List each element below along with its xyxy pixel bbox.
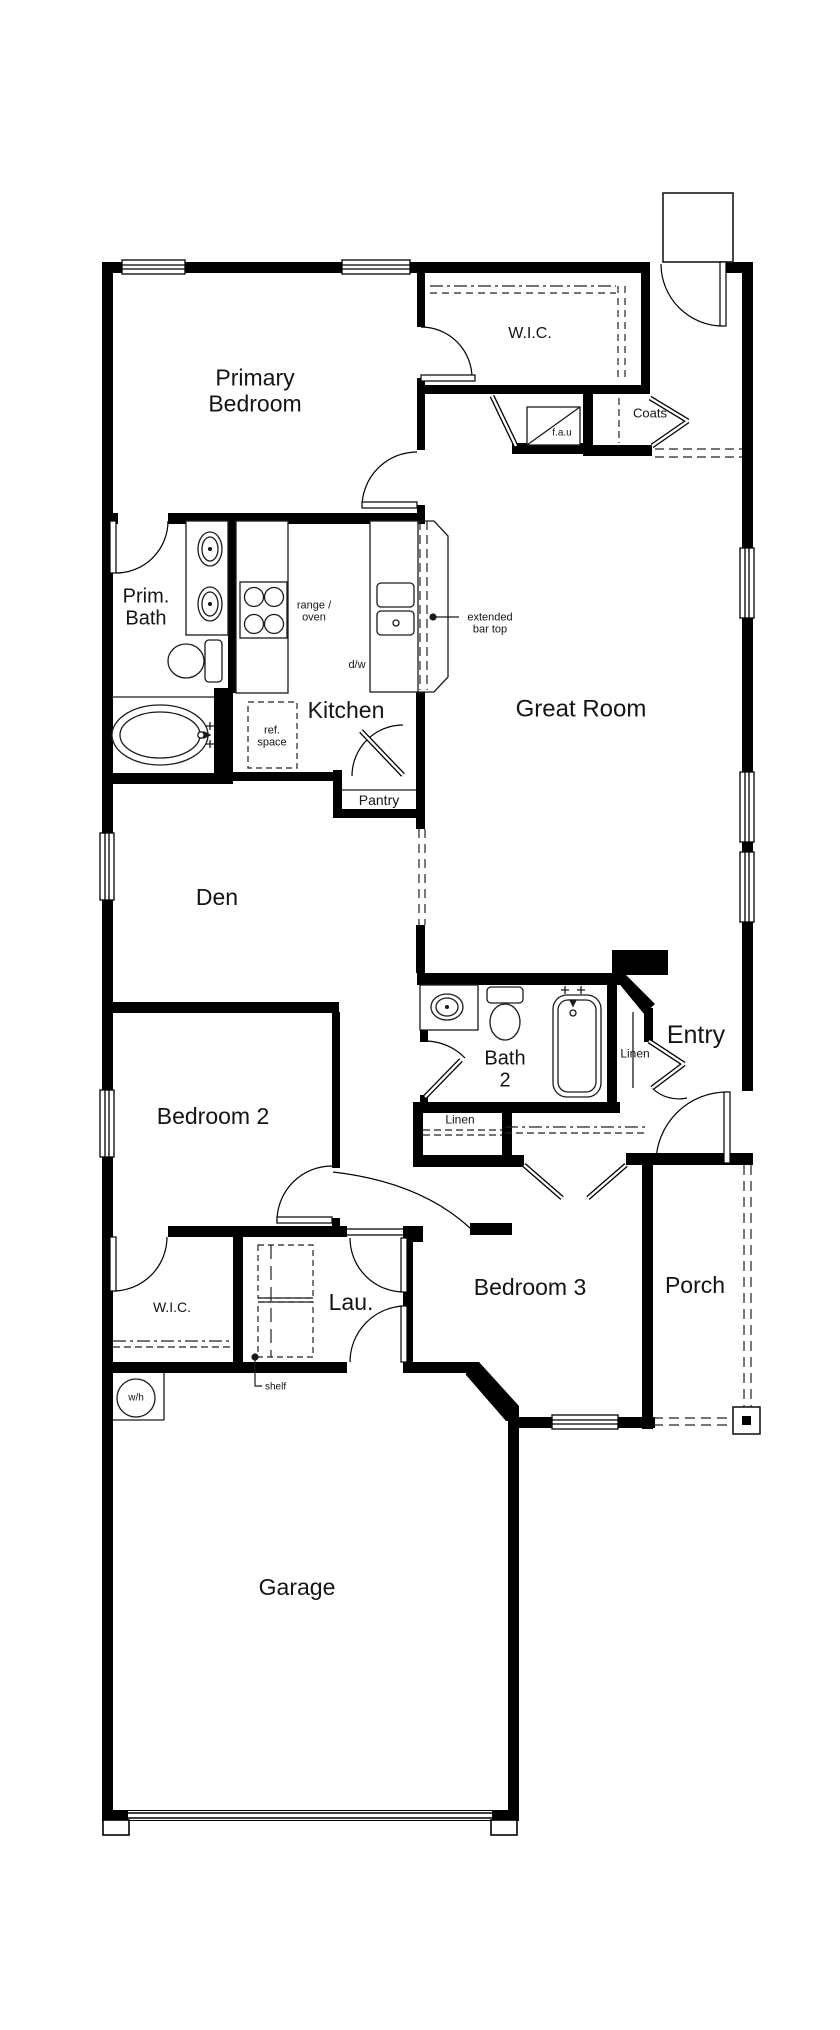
window-icon (100, 1090, 114, 1157)
vanity-icon (420, 985, 478, 1030)
room-label-lau: Lau. (329, 1290, 374, 1316)
room-label-bath2: Bath 2 (484, 1048, 525, 1093)
room-label-kitchen: Kitchen (308, 698, 385, 724)
range-oven-icon (240, 582, 287, 638)
lau-opening-header (347, 1227, 403, 1236)
closet-label-coats: Coats (633, 407, 667, 422)
prim-bath-door-arc (116, 521, 168, 573)
bedroom2-door-leaf (277, 1217, 332, 1223)
room-label-entry: Entry (667, 1021, 725, 1049)
shelf-label: shelf (265, 1382, 286, 1393)
bathtub-icon (553, 986, 601, 1097)
front-door-arc (656, 1092, 727, 1163)
toilet-icon (487, 987, 523, 1040)
prim-bath-door-leaf (110, 521, 116, 573)
wic-primary-door-arc (421, 327, 472, 378)
primary-door-leaf (362, 502, 417, 508)
dishwasher-label: d/w (348, 659, 365, 671)
linen-upper-door-arc (652, 1088, 687, 1099)
room-label-bedroom2: Bedroom 2 (157, 1104, 270, 1130)
room-label-garage: Garage (259, 1575, 336, 1601)
window-icon (740, 548, 754, 618)
room-label-prim-bath: Prim. Bath (123, 586, 170, 631)
window-icon (740, 772, 754, 842)
room-label-bedroom3: Bedroom 3 (474, 1275, 587, 1301)
primary-door-arc (362, 452, 417, 507)
room-label-primary-bedroom: Primary Bedroom (208, 365, 301, 417)
window-icon (552, 1415, 618, 1429)
wic2-door-leaf (110, 1237, 116, 1291)
window-icon (740, 852, 754, 922)
ref-space-label: ref. space (257, 725, 286, 750)
room-label-great-room: Great Room (516, 697, 647, 724)
window-icon (100, 833, 114, 900)
fau-icon (527, 407, 580, 445)
back-door-leaf (720, 262, 726, 326)
vanity-icon (186, 521, 228, 635)
floorplan-page: Primary Bedroom W.I.C. Coats f.a.u Prim.… (0, 0, 840, 2030)
window-icon (122, 260, 185, 274)
lau-hall-door-leaf (401, 1238, 407, 1292)
toilet-icon (168, 640, 222, 682)
floorplan-svg (0, 0, 840, 2030)
range-oven-label: range / oven (297, 600, 331, 625)
extended-bar-label: extended bar top (467, 612, 512, 637)
lau-hall-door-arc (350, 1238, 404, 1292)
room-label-wic2: W.I.C. (153, 1300, 191, 1316)
closet-label-linen-lower: Linen (445, 1113, 474, 1126)
dashed-detail (113, 286, 751, 1425)
bath2-door-arc (425, 1041, 465, 1058)
room-label-porch: Porch (665, 1273, 725, 1299)
front-door-leaf (724, 1092, 730, 1163)
bathtub-icon (112, 697, 214, 765)
closet-label-linen-upper: Linen (620, 1047, 649, 1060)
fau-label: f.a.u (552, 427, 571, 438)
back-door-arc (661, 264, 723, 326)
bar-top-callout-dot (430, 614, 436, 620)
lau-garage-door-leaf (401, 1306, 407, 1362)
room-label-den: Den (196, 885, 238, 911)
wic2-door-arc (113, 1237, 167, 1291)
porch-post (733, 1407, 760, 1434)
room-label-wic-primary: W.I.C. (508, 325, 552, 343)
room-label-pantry: Pantry (359, 793, 399, 809)
extended-bar-top (418, 521, 448, 692)
garage-door (103, 1811, 517, 1835)
stoop (663, 193, 733, 262)
bedroom2-door-arc (277, 1166, 332, 1221)
window-icon (342, 260, 410, 274)
bedroom3-door-arc (333, 1172, 470, 1228)
wic-primary-door-leaf (421, 375, 475, 381)
water-heater-label: w/h (128, 1392, 144, 1403)
windows (100, 260, 754, 1429)
